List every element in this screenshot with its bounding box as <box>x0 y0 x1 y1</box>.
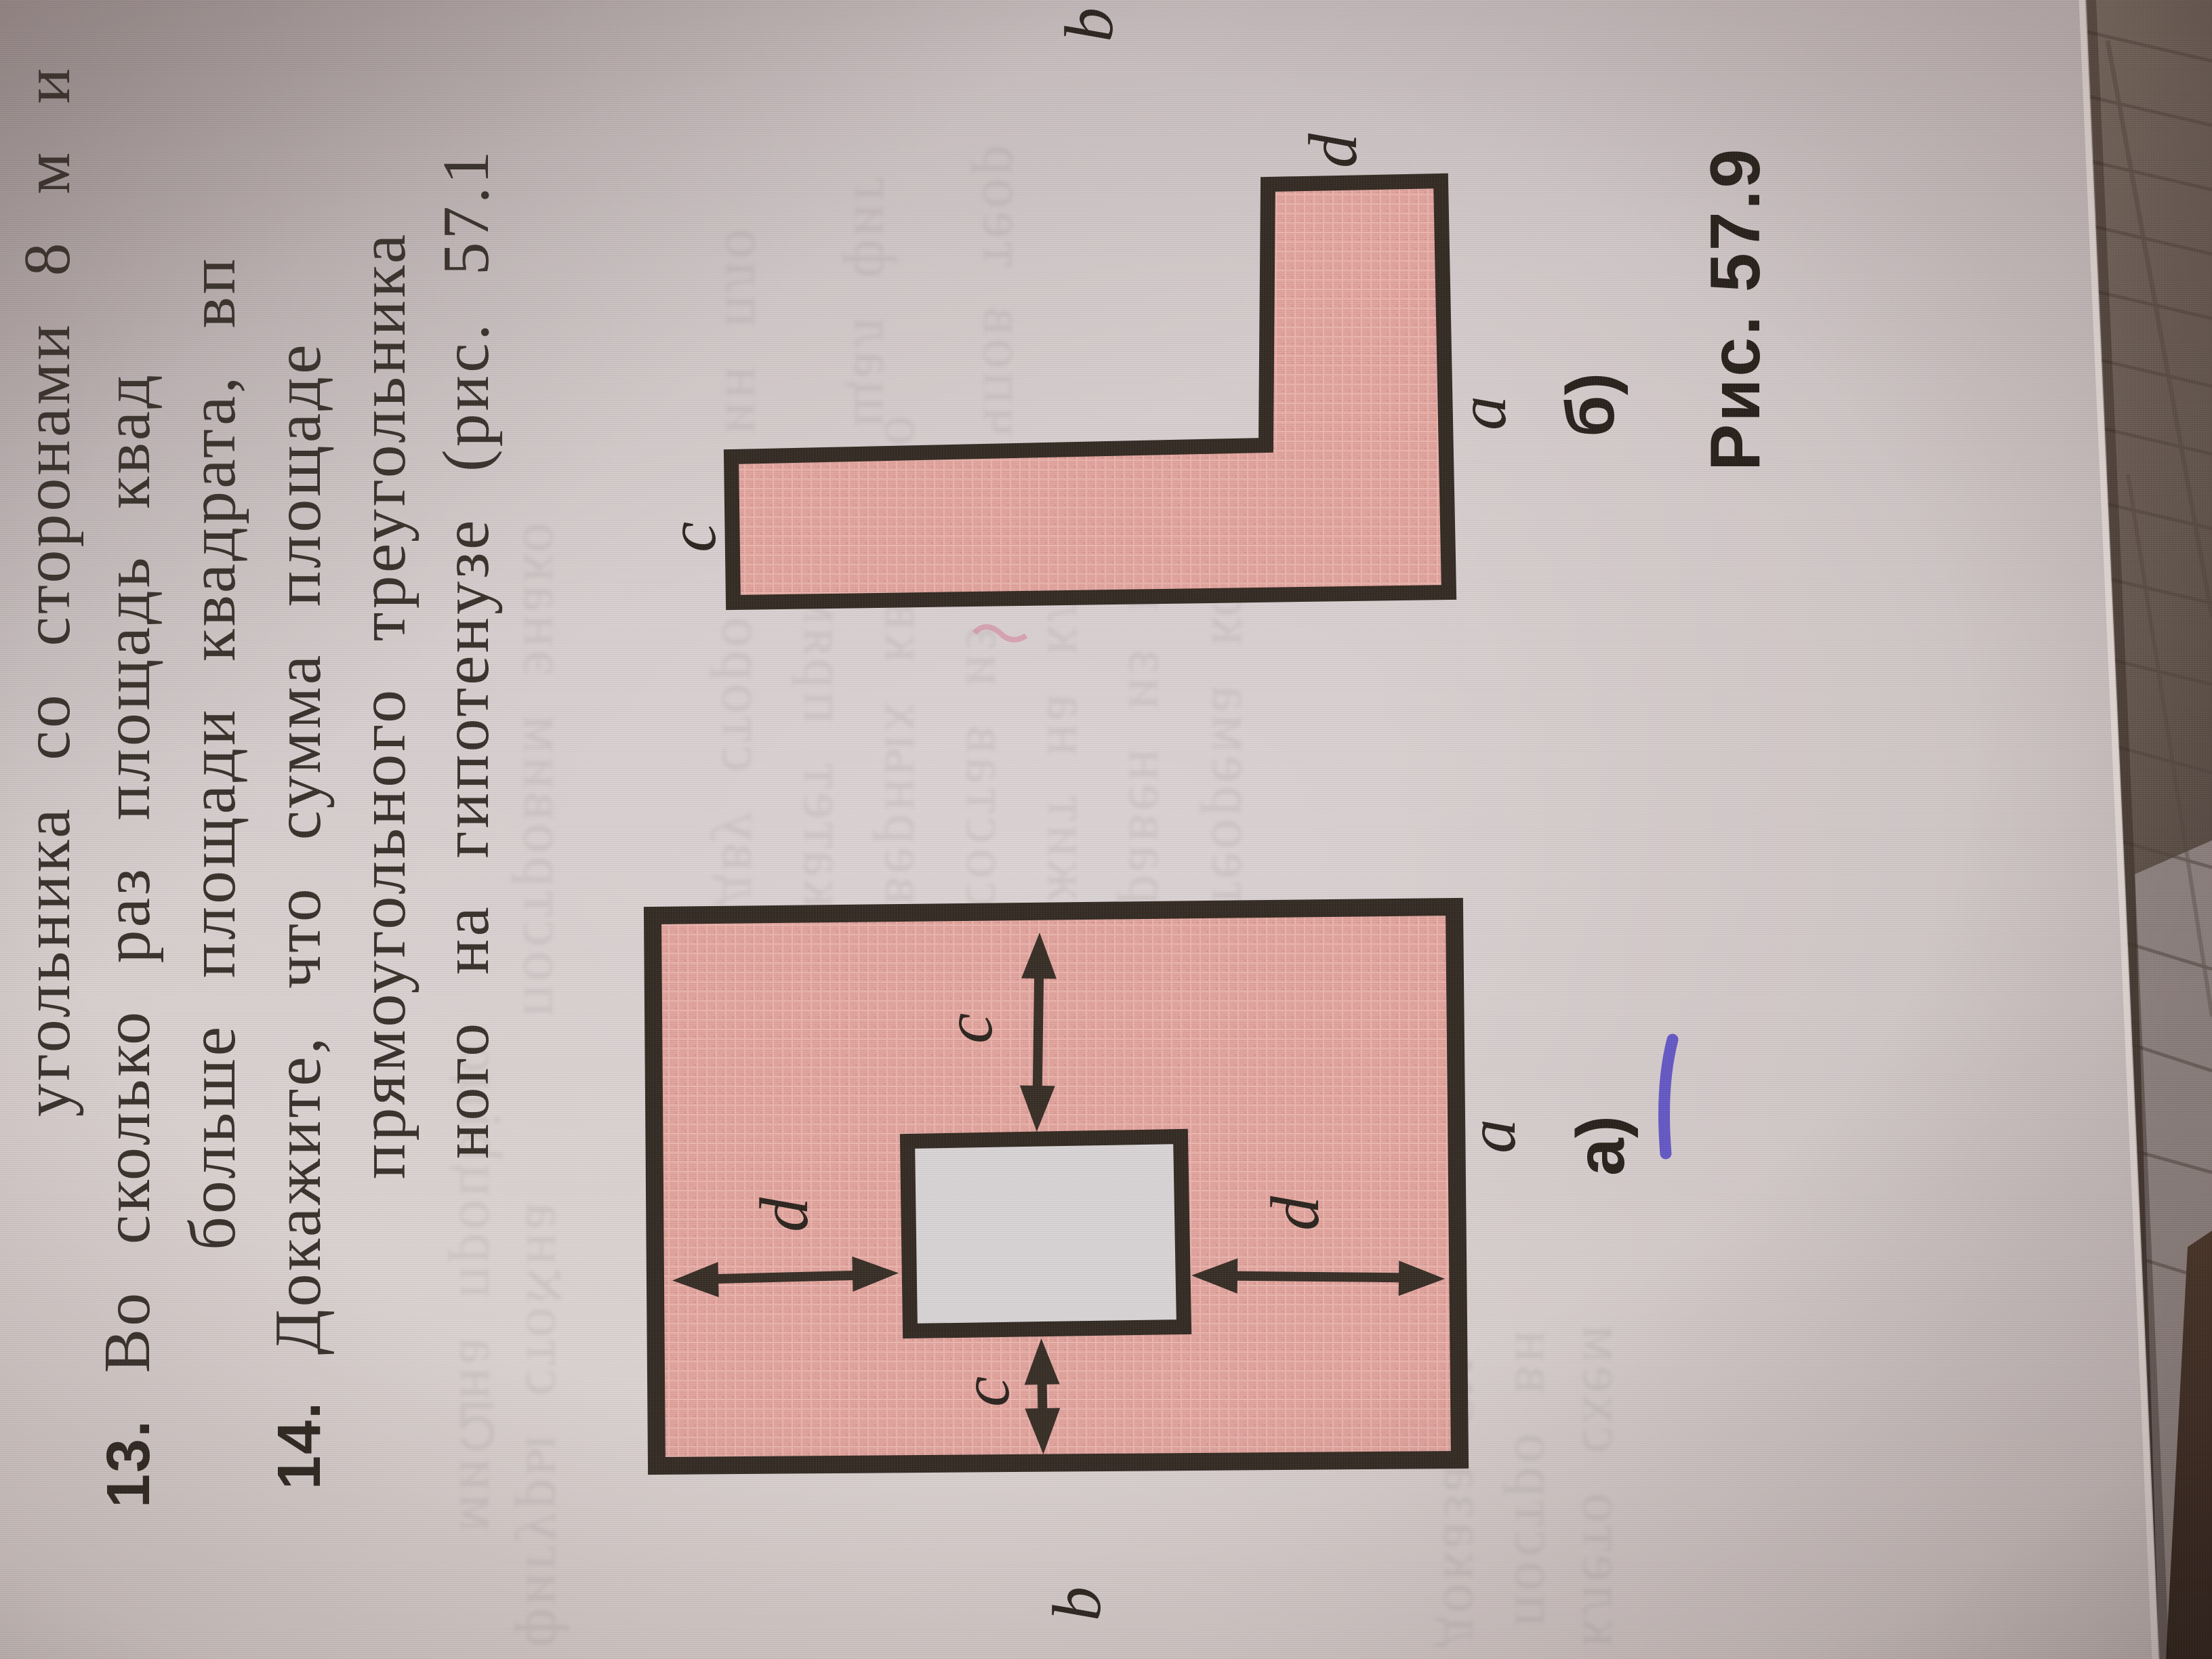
page-edge-and-background <box>0 0 2212 1659</box>
photo-of-textbook-page: миവна процbiцαпостровим энакофигуры стоא… <box>0 0 2212 1659</box>
